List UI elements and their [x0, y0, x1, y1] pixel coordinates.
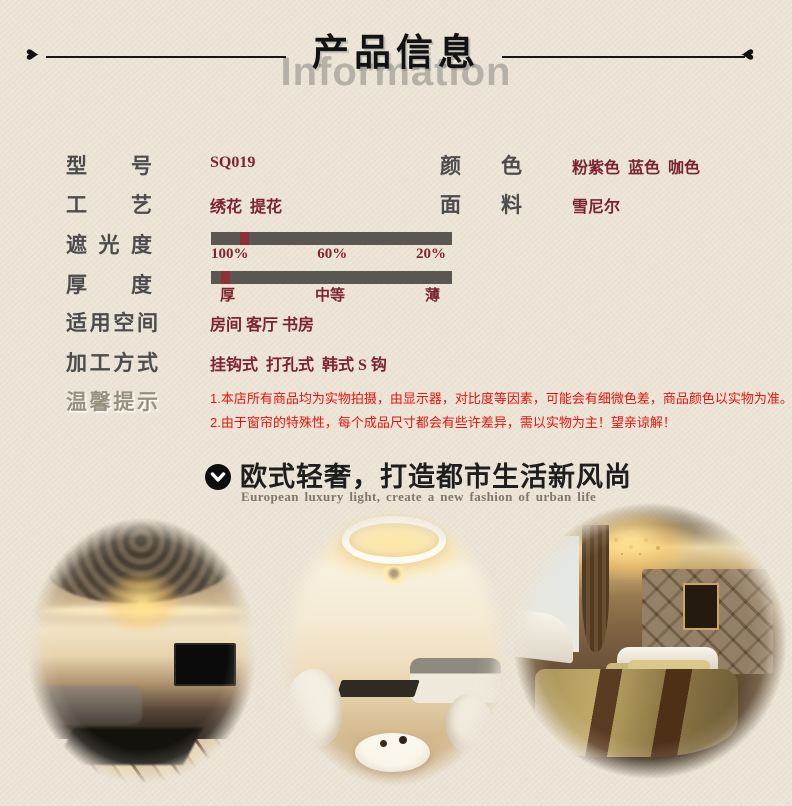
tick-label: 中等: [315, 284, 345, 305]
page-title: 产品信息: [0, 22, 792, 76]
thickness-marker: [221, 271, 230, 284]
spec-label-thickness: 厚度: [66, 269, 152, 299]
tv-shape: [174, 643, 236, 686]
thickness-tick-labels: 厚 中等 薄: [211, 284, 452, 305]
chandelier-glow: [101, 571, 184, 635]
ceiling-ring-shape: [342, 516, 447, 563]
spec-label-craft: 工艺: [66, 189, 152, 219]
spec-value-craft: 绣花 提花: [210, 193, 282, 217]
spec-label-shading: 遮光度: [66, 229, 152, 259]
thickness-scale-bar: [211, 271, 452, 284]
chandelier-glow: [383, 566, 406, 591]
banner-subtitle: European luxury light, create a new fash…: [241, 489, 596, 505]
tip-line-1: 1.本店所有商品均为实物拍摄，由显示器，对比度等因素，可能会有细微色差，商品颜色…: [210, 388, 792, 407]
coffee-table-shape: [337, 680, 420, 697]
spec-value-fabric: 雪尼尔: [572, 193, 620, 217]
tick-label: 薄: [425, 284, 440, 305]
product-info-page: ♥ Information 产品信息 ♥ 型号 SQ019 颜色 粉紫色 蓝色 …: [0, 0, 792, 806]
spec-value-processing: 挂钩式 打孔式 韩式 S 钩: [210, 351, 387, 375]
room-photo-bright-living-room: [280, 508, 508, 786]
spec-label-model: 型号: [66, 150, 152, 180]
sofa-shape: [410, 658, 501, 702]
tick-label: 厚: [220, 284, 235, 305]
dark-rug-shape: [54, 728, 203, 765]
chandelier-shape: [628, 531, 634, 537]
chevron-down-icon: [205, 464, 231, 490]
spec-label-fabric: 面料: [440, 189, 522, 219]
shading-tick-labels: 100% 60% 20%: [211, 246, 452, 263]
spec-label-space: 适用空间: [66, 307, 158, 337]
dark-curtain-shape: [582, 525, 609, 652]
coffee-cup-shape: [399, 736, 407, 744]
spec-value-space: 房间 客厅 书房: [210, 311, 314, 335]
spec-value-model: SQ019: [210, 154, 255, 172]
room-photo-luxury-bedroom: [513, 503, 787, 779]
shading-scale-bar: [211, 232, 452, 245]
spec-label-processing: 加工方式: [66, 347, 158, 377]
spec-label-color: 颜色: [440, 150, 522, 180]
header-divider-line: [502, 56, 745, 58]
room-photo-european-living-room: [27, 518, 257, 784]
chevron-down-badge: [205, 464, 231, 490]
spec-label-tips: 温馨提示: [66, 386, 158, 416]
armchair-shape: [446, 694, 492, 752]
framed-painting-shape: [683, 583, 719, 630]
tick-label: 60%: [317, 246, 347, 263]
sofa-shape: [36, 686, 142, 726]
tip-line-2: 2.由于窗帘的特殊性，每个成品尺寸都会有些许差异，需以实物为主！望亲谅解！: [210, 412, 676, 431]
shading-marker: [240, 232, 249, 245]
bed-shape: [535, 669, 738, 757]
armchair-shape: [285, 669, 342, 747]
heart-icon: ♥: [738, 48, 759, 60]
tick-label: 20%: [416, 246, 446, 263]
spec-value-color: 粉紫色 蓝色 咖色: [572, 154, 700, 178]
tick-label: 100%: [211, 246, 249, 263]
